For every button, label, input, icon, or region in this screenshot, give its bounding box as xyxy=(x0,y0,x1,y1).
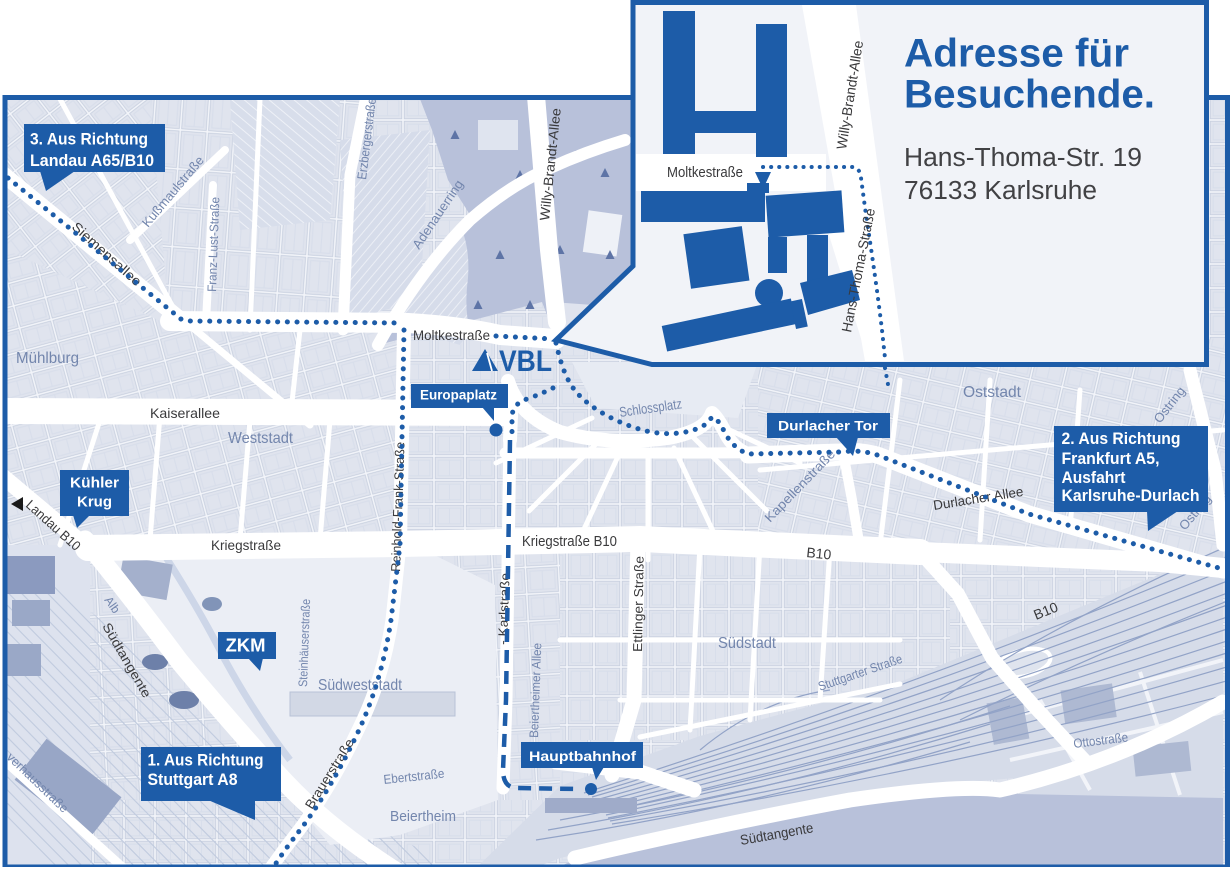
svg-text:76133 Karlsruhe: 76133 Karlsruhe xyxy=(904,177,1097,205)
svg-text:Südweststadt: Südweststadt xyxy=(318,677,402,694)
svg-text:Kriegstraße: Kriegstraße xyxy=(211,537,281,553)
svg-text:Karlsruhe-Durlach: Karlsruhe-Durlach xyxy=(1062,487,1200,505)
svg-text:ZKM: ZKM xyxy=(226,636,266,656)
svg-text:Kaiserallee: Kaiserallee xyxy=(150,405,220,421)
svg-text:1. Aus Richtung: 1. Aus Richtung xyxy=(148,752,264,770)
svg-text:Hauptbahnhof: Hauptbahnhof xyxy=(529,748,636,764)
svg-text:Europaplatz: Europaplatz xyxy=(420,387,497,403)
svg-text:Kriegstraße B10: Kriegstraße B10 xyxy=(522,534,617,550)
svg-text:Moltkestraße: Moltkestraße xyxy=(413,327,490,343)
svg-text:Beiertheim: Beiertheim xyxy=(390,808,456,825)
svg-text:Ettlinger Straße: Ettlinger Straße xyxy=(630,556,647,652)
svg-text:Krug: Krug xyxy=(77,495,112,511)
svg-text:Landau A65/B10: Landau A65/B10 xyxy=(30,152,154,170)
svg-text:Hans-Thoma-Str. 19: Hans-Thoma-Str. 19 xyxy=(904,144,1142,172)
svg-text:Besuchende.: Besuchende. xyxy=(904,73,1155,117)
svg-text:Weststadt: Weststadt xyxy=(228,430,294,447)
svg-text:Frankfurt A5,: Frankfurt A5, xyxy=(1062,450,1160,468)
svg-text:Südstadt: Südstadt xyxy=(718,635,777,652)
svg-text:Durlacher Tor: Durlacher Tor xyxy=(778,418,879,434)
svg-text:Adresse für: Adresse für xyxy=(904,32,1129,76)
svg-text:Moltkestraße: Moltkestraße xyxy=(667,165,743,181)
svg-text:Stuttgart A8: Stuttgart A8 xyxy=(148,771,238,789)
svg-text:Mühlburg: Mühlburg xyxy=(16,350,79,367)
svg-text:B10: B10 xyxy=(806,544,833,563)
svg-text:Kühler: Kühler xyxy=(70,475,119,491)
svg-text:VBL: VBL xyxy=(499,345,552,378)
svg-text:Ausfahrt: Ausfahrt xyxy=(1062,469,1126,487)
svg-text:Oststadt: Oststadt xyxy=(963,384,1022,401)
svg-text:3. Aus Richtung: 3. Aus Richtung xyxy=(30,131,148,149)
svg-text:2. Aus Richtung: 2. Aus Richtung xyxy=(1062,430,1181,448)
svg-text:- Karlstraße: - Karlstraße xyxy=(495,573,513,645)
